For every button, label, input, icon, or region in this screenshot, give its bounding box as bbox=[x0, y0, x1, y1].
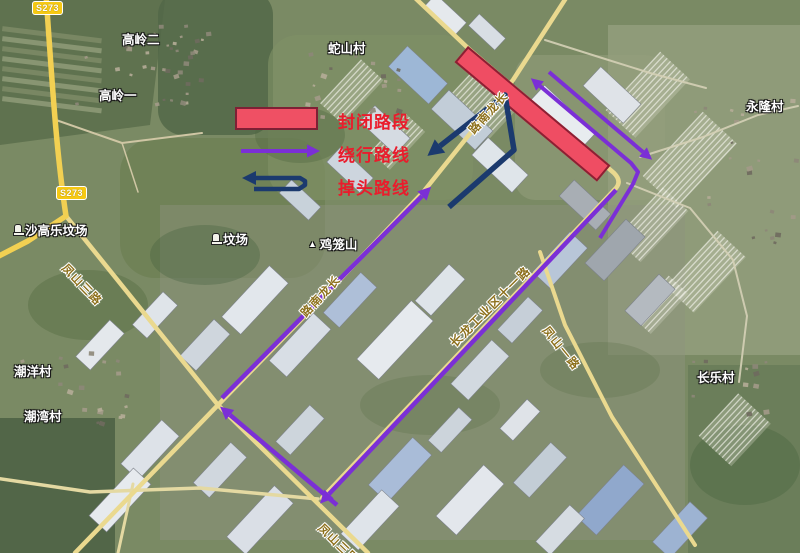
place-label-shagaole-cemetery: 沙高乐坟场 bbox=[14, 220, 88, 239]
cemetery-icon bbox=[212, 233, 220, 244]
route-shield-s273: S273 bbox=[56, 186, 87, 200]
place-label-jilongshan: ▲ 鸡笼山 bbox=[308, 234, 357, 253]
place-label-yonglongcun: 永隆村 bbox=[746, 96, 784, 115]
place-label-chaoyangcun: 潮洋村 bbox=[14, 361, 52, 380]
legend-uturn-label: 掉头路线 bbox=[338, 174, 410, 199]
mountain-icon: ▲ bbox=[308, 239, 317, 249]
legend-closed-label: 封闭路段 bbox=[338, 108, 410, 133]
place-label-changlecun: 长乐村 bbox=[697, 367, 735, 386]
place-label-sheshancun: 蛇山村 bbox=[328, 38, 366, 57]
place-label-gaoling-yi: 高岭一 bbox=[99, 85, 137, 104]
route-shield-s273: S273 bbox=[32, 1, 63, 15]
legend-detour-label: 绕行路线 bbox=[338, 141, 410, 166]
place-label-chaowancun: 潮湾村 bbox=[24, 406, 62, 425]
cemetery-icon bbox=[14, 224, 22, 235]
place-label-gaoling-er: 高岭二 bbox=[122, 29, 160, 48]
place-label-cemetery: 坟场 bbox=[212, 229, 248, 248]
road-closure-map: S273 S273 高岭二 高岭一 蛇山村 永隆村 沙高乐坟场 坟场 ▲ 鸡笼山… bbox=[0, 0, 800, 553]
route-arrows-overlay bbox=[0, 0, 800, 553]
legend-closed-segment-swatch bbox=[235, 107, 318, 130]
